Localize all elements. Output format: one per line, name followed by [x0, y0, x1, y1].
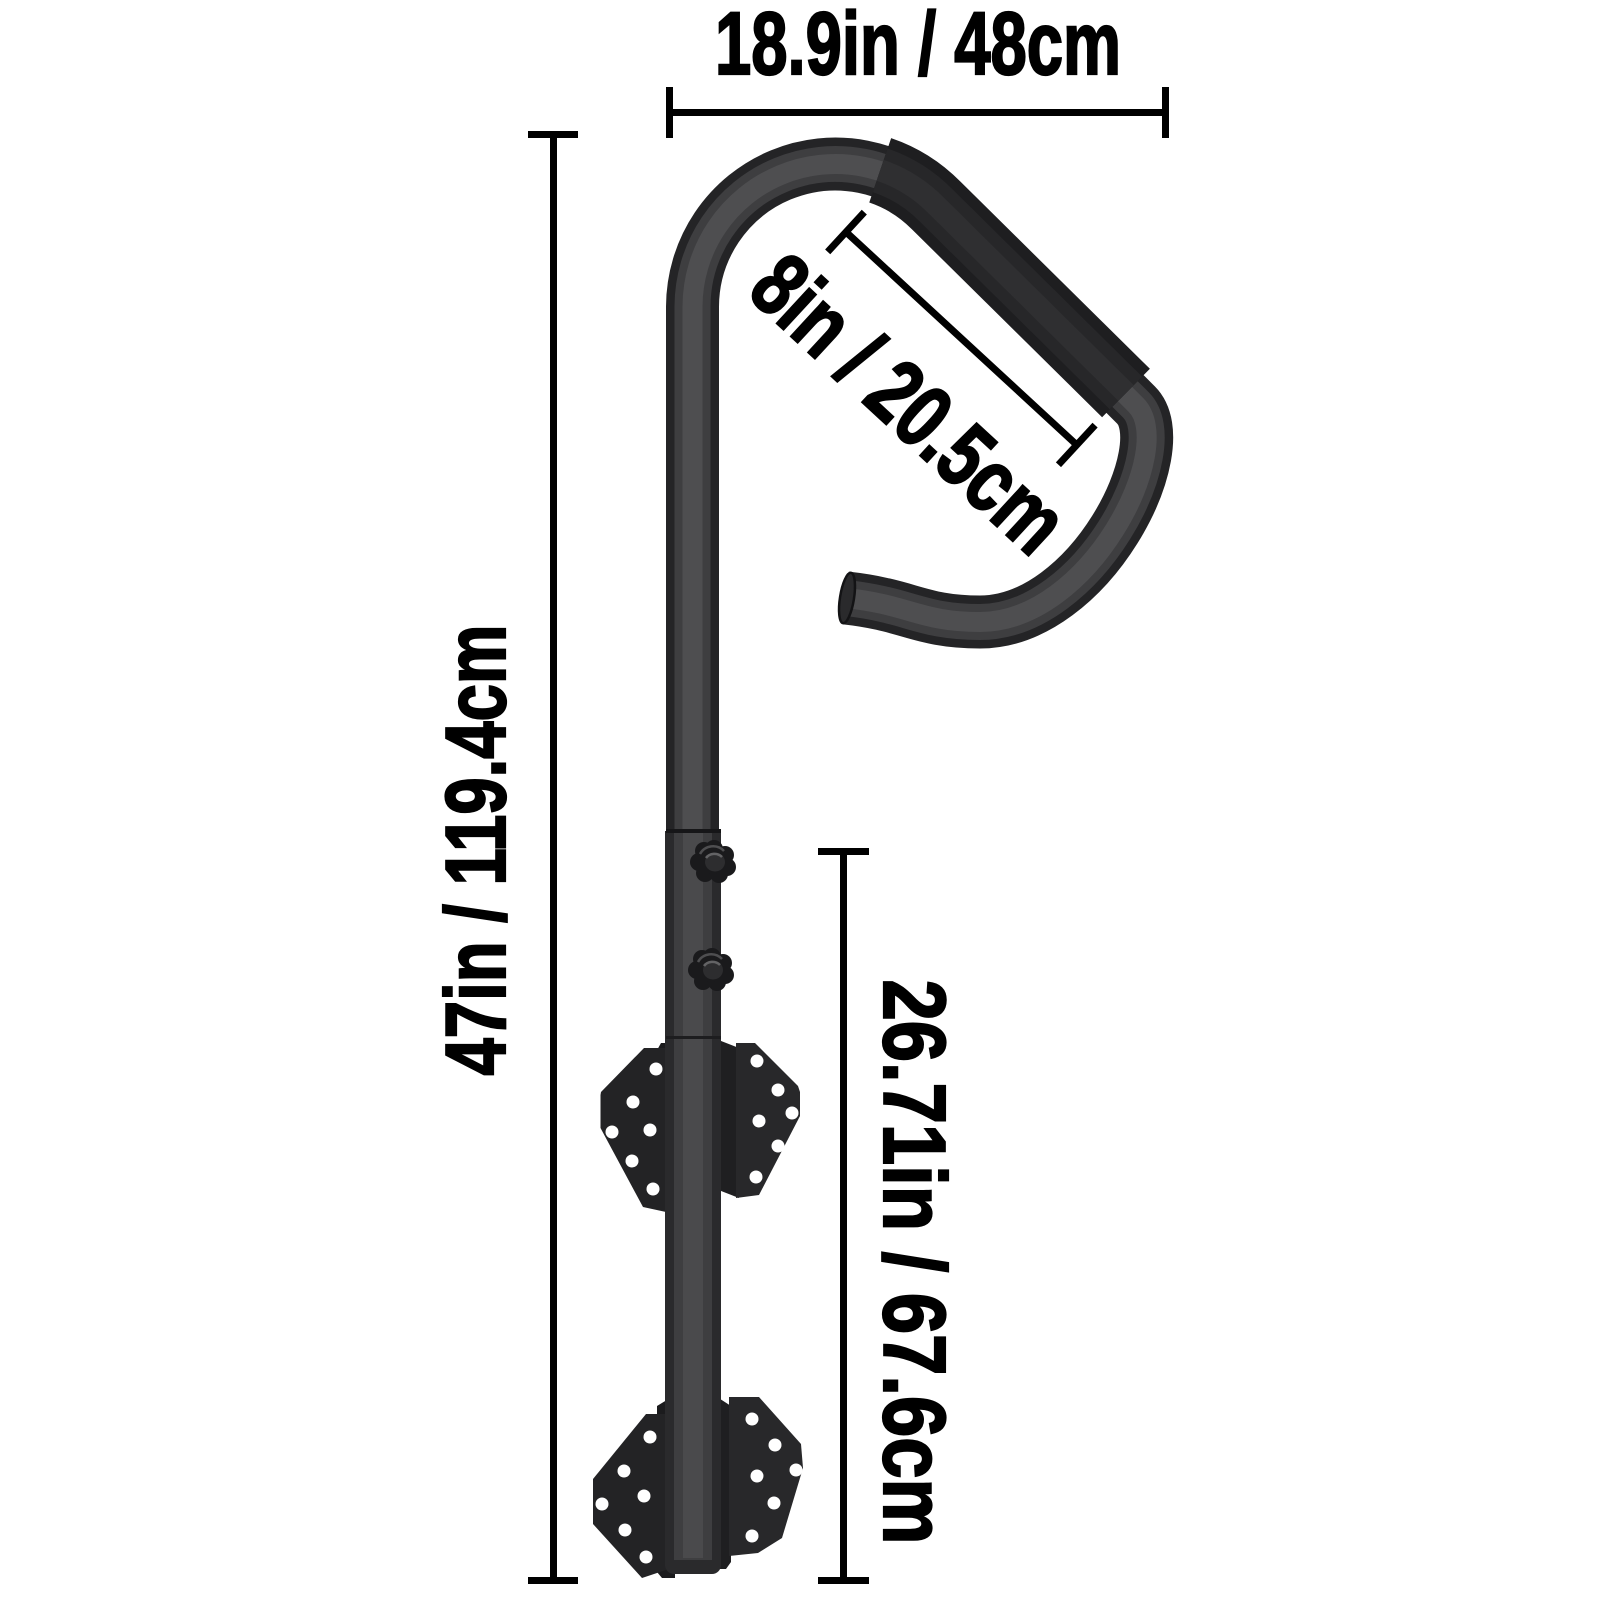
svg-text:18.9in / 48cm: 18.9in / 48cm — [715, 0, 1121, 93]
svg-text:26.71in / 67.6cm: 26.71in / 67.6cm — [865, 980, 964, 1545]
svg-text:47in / 119.4cm: 47in / 119.4cm — [429, 625, 524, 1076]
